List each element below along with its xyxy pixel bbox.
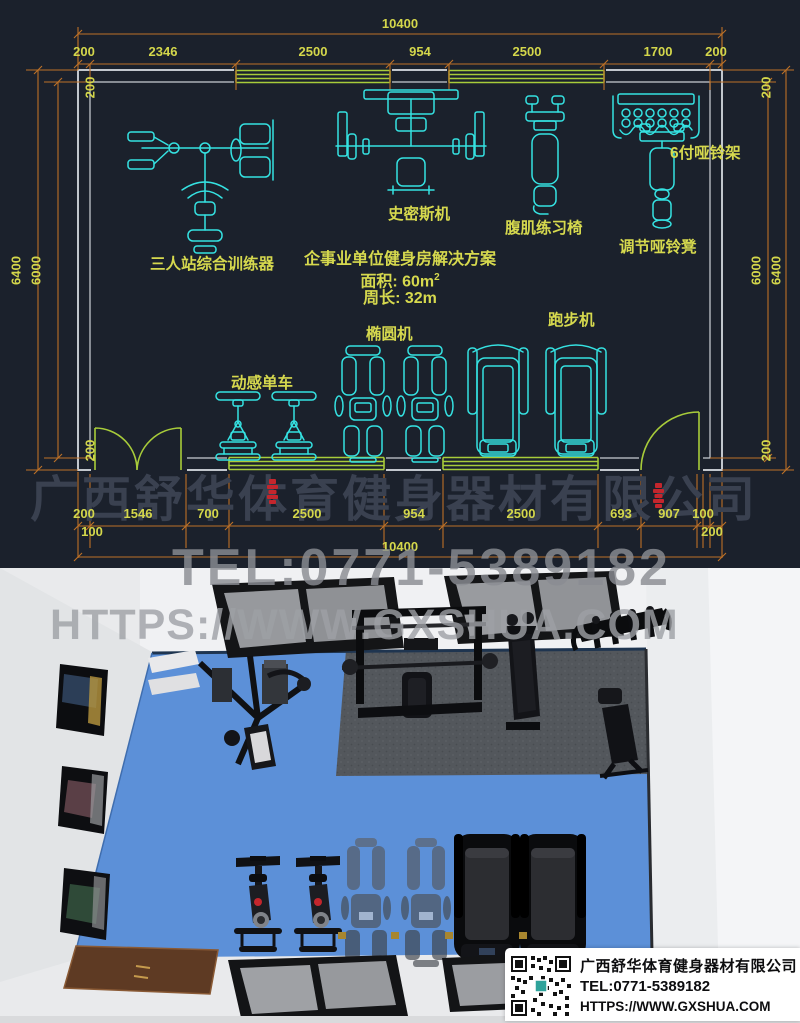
ab-chair-plan [526,96,564,214]
solution-title: 企事业单位健身房解决方案 [285,251,515,269]
spin-bike-plan [272,392,316,460]
dim-left-inner: 6000 [29,243,44,299]
dim-right-top: 200 [759,60,774,116]
dim-top-seg: 200 [688,44,744,59]
label-ab-chair: 腹肌练习椅 [505,216,583,238]
dim-bottom-seg: 200 [56,506,112,521]
window-bottom-right [441,456,600,472]
double-door [91,428,187,472]
dim-top-total: 10400 [372,16,428,31]
window-top-left [234,68,392,84]
dim-top-seg: 1700 [630,44,686,59]
entry-mat [64,946,218,994]
info-card-tel: TEL:0771-5389182 [580,977,797,997]
label-multi-station: 三人站综合训练器 [150,252,274,274]
label-elliptical: 椭圆机 [366,322,413,344]
solution-text: 企事业单位健身房解决方案 面积: 60m2 周长: 32m [285,251,515,307]
treadmill-3d [520,834,586,960]
solution-perimeter: 周长: 32m [285,290,515,307]
wall-poster [60,868,110,940]
dim-left-bottom: 200 [83,423,98,479]
label-dumbbell-bench: 调节哑铃凳 [619,235,697,257]
dim-bottom-sub-left: 100 [64,524,120,539]
skylight-window [212,577,404,658]
dim-left-top: 200 [83,60,98,116]
floor-tag [391,932,399,939]
floor-tag [338,932,346,939]
dim-bottom-seg: 700 [180,506,236,521]
dim-bottom-sub-right: 200 [684,524,740,539]
wall-poster [58,766,108,834]
label-dumbbell-rack: 6付哑铃架 [670,141,741,163]
info-card-url: HTTPS://WWW.GXSHUA.COM [580,997,797,1016]
info-card: 广西舒华体育健身器材有限公司 TEL:0771-5389182 HTTPS://… [505,948,800,1021]
single-door [639,412,703,472]
dim-top-seg: 2346 [135,44,191,59]
dim-top-seg: 2500 [499,44,555,59]
shua-logo-icon [264,479,281,505]
dim-top-seg: 954 [392,44,448,59]
solution-area: 面积: 60m2 [285,269,515,290]
elliptical-plan [335,346,391,462]
info-card-company: 广西舒华体育健身器材有限公司 [580,956,797,977]
label-smith-machine: 史密斯机 [388,202,450,224]
skylight-window [228,955,408,1022]
adjustable-bench-plan [640,124,684,228]
floor-tag [519,932,527,939]
window-top-right [447,68,606,84]
multi-station-trainer-plan [128,120,273,253]
label-spin-bike: 动感单车 [231,371,293,393]
qr-code [509,954,573,1018]
label-treadmill: 跑步机 [548,308,595,330]
treadmill-plan [546,345,606,456]
dim-top-seg: 200 [56,44,112,59]
floor-tag [445,932,453,939]
wall-poster [56,664,108,736]
floor-plan-section: 10400 200 2346 2500 954 2500 1700 200 20… [0,0,800,568]
spin-bike-plan [216,392,260,460]
dim-right-bottom: 200 [759,423,774,479]
treadmill-3d [454,834,520,960]
dim-top-seg: 2500 [285,44,341,59]
dim-right-inner: 6000 [749,243,764,299]
treadmill-plan [468,345,528,456]
smith-machine-plan [336,90,486,194]
dim-bottom-seg: 2500 [279,506,335,521]
dim-bottom-seg: 100 [675,506,731,521]
dim-bottom-total: 10400 [372,539,428,554]
dim-bottom-seg: 1546 [110,506,166,521]
dim-right-outer: 6400 [769,243,784,299]
gym-layout-poster: 10400 200 2346 2500 954 2500 1700 200 20… [0,0,800,1023]
elliptical-plan [397,346,453,462]
dim-bottom-seg: 2500 [493,506,549,521]
dim-bottom-seg: 954 [386,506,442,521]
dim-left-outer: 6400 [9,243,24,299]
